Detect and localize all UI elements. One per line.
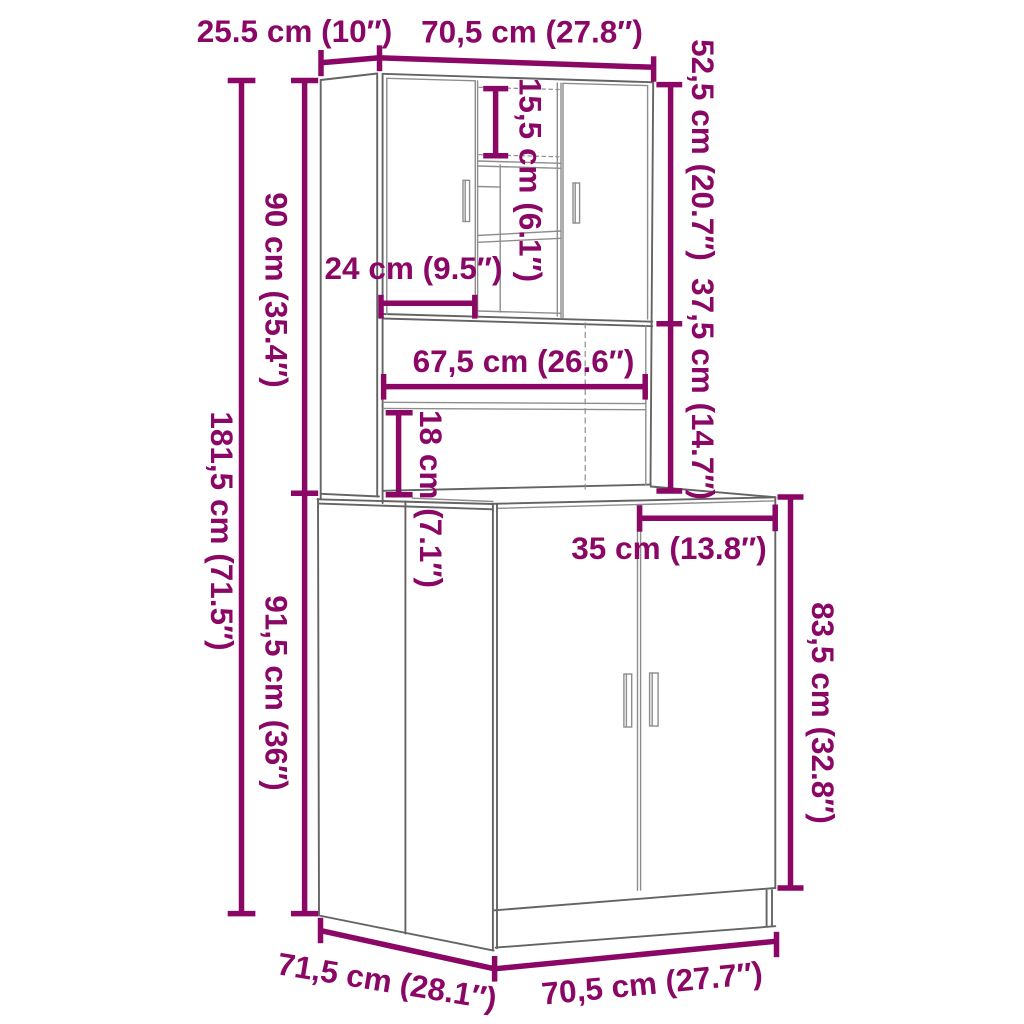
svg-text:52,5 cm (20.7″): 52,5 cm (20.7″) — [685, 39, 721, 261]
svg-text:24 cm (9.5″): 24 cm (9.5″) — [325, 250, 503, 286]
svg-text:70,5 cm (27.8″): 70,5 cm (27.8″) — [421, 14, 643, 50]
svg-text:91,5 cm (36″): 91,5 cm (36″) — [259, 595, 295, 790]
svg-text:67,5 cm (26.6″): 67,5 cm (26.6″) — [413, 343, 635, 379]
svg-text:25.5 cm (10″): 25.5 cm (10″) — [197, 13, 392, 49]
svg-text:15,5 cm (6.1″): 15,5 cm (6.1″) — [513, 78, 549, 282]
svg-text:35 cm (13.8″): 35 cm (13.8″) — [571, 530, 766, 566]
svg-text:181,5 cm (71.5″): 181,5 cm (71.5″) — [204, 411, 240, 650]
svg-text:83,5 cm (32.8″): 83,5 cm (32.8″) — [805, 602, 841, 824]
svg-text:37,5 cm (14.7″): 37,5 cm (14.7″) — [685, 278, 721, 500]
svg-text:90 cm (35.4″): 90 cm (35.4″) — [259, 192, 295, 387]
svg-text:18 cm (7.1″): 18 cm (7.1″) — [413, 410, 449, 588]
